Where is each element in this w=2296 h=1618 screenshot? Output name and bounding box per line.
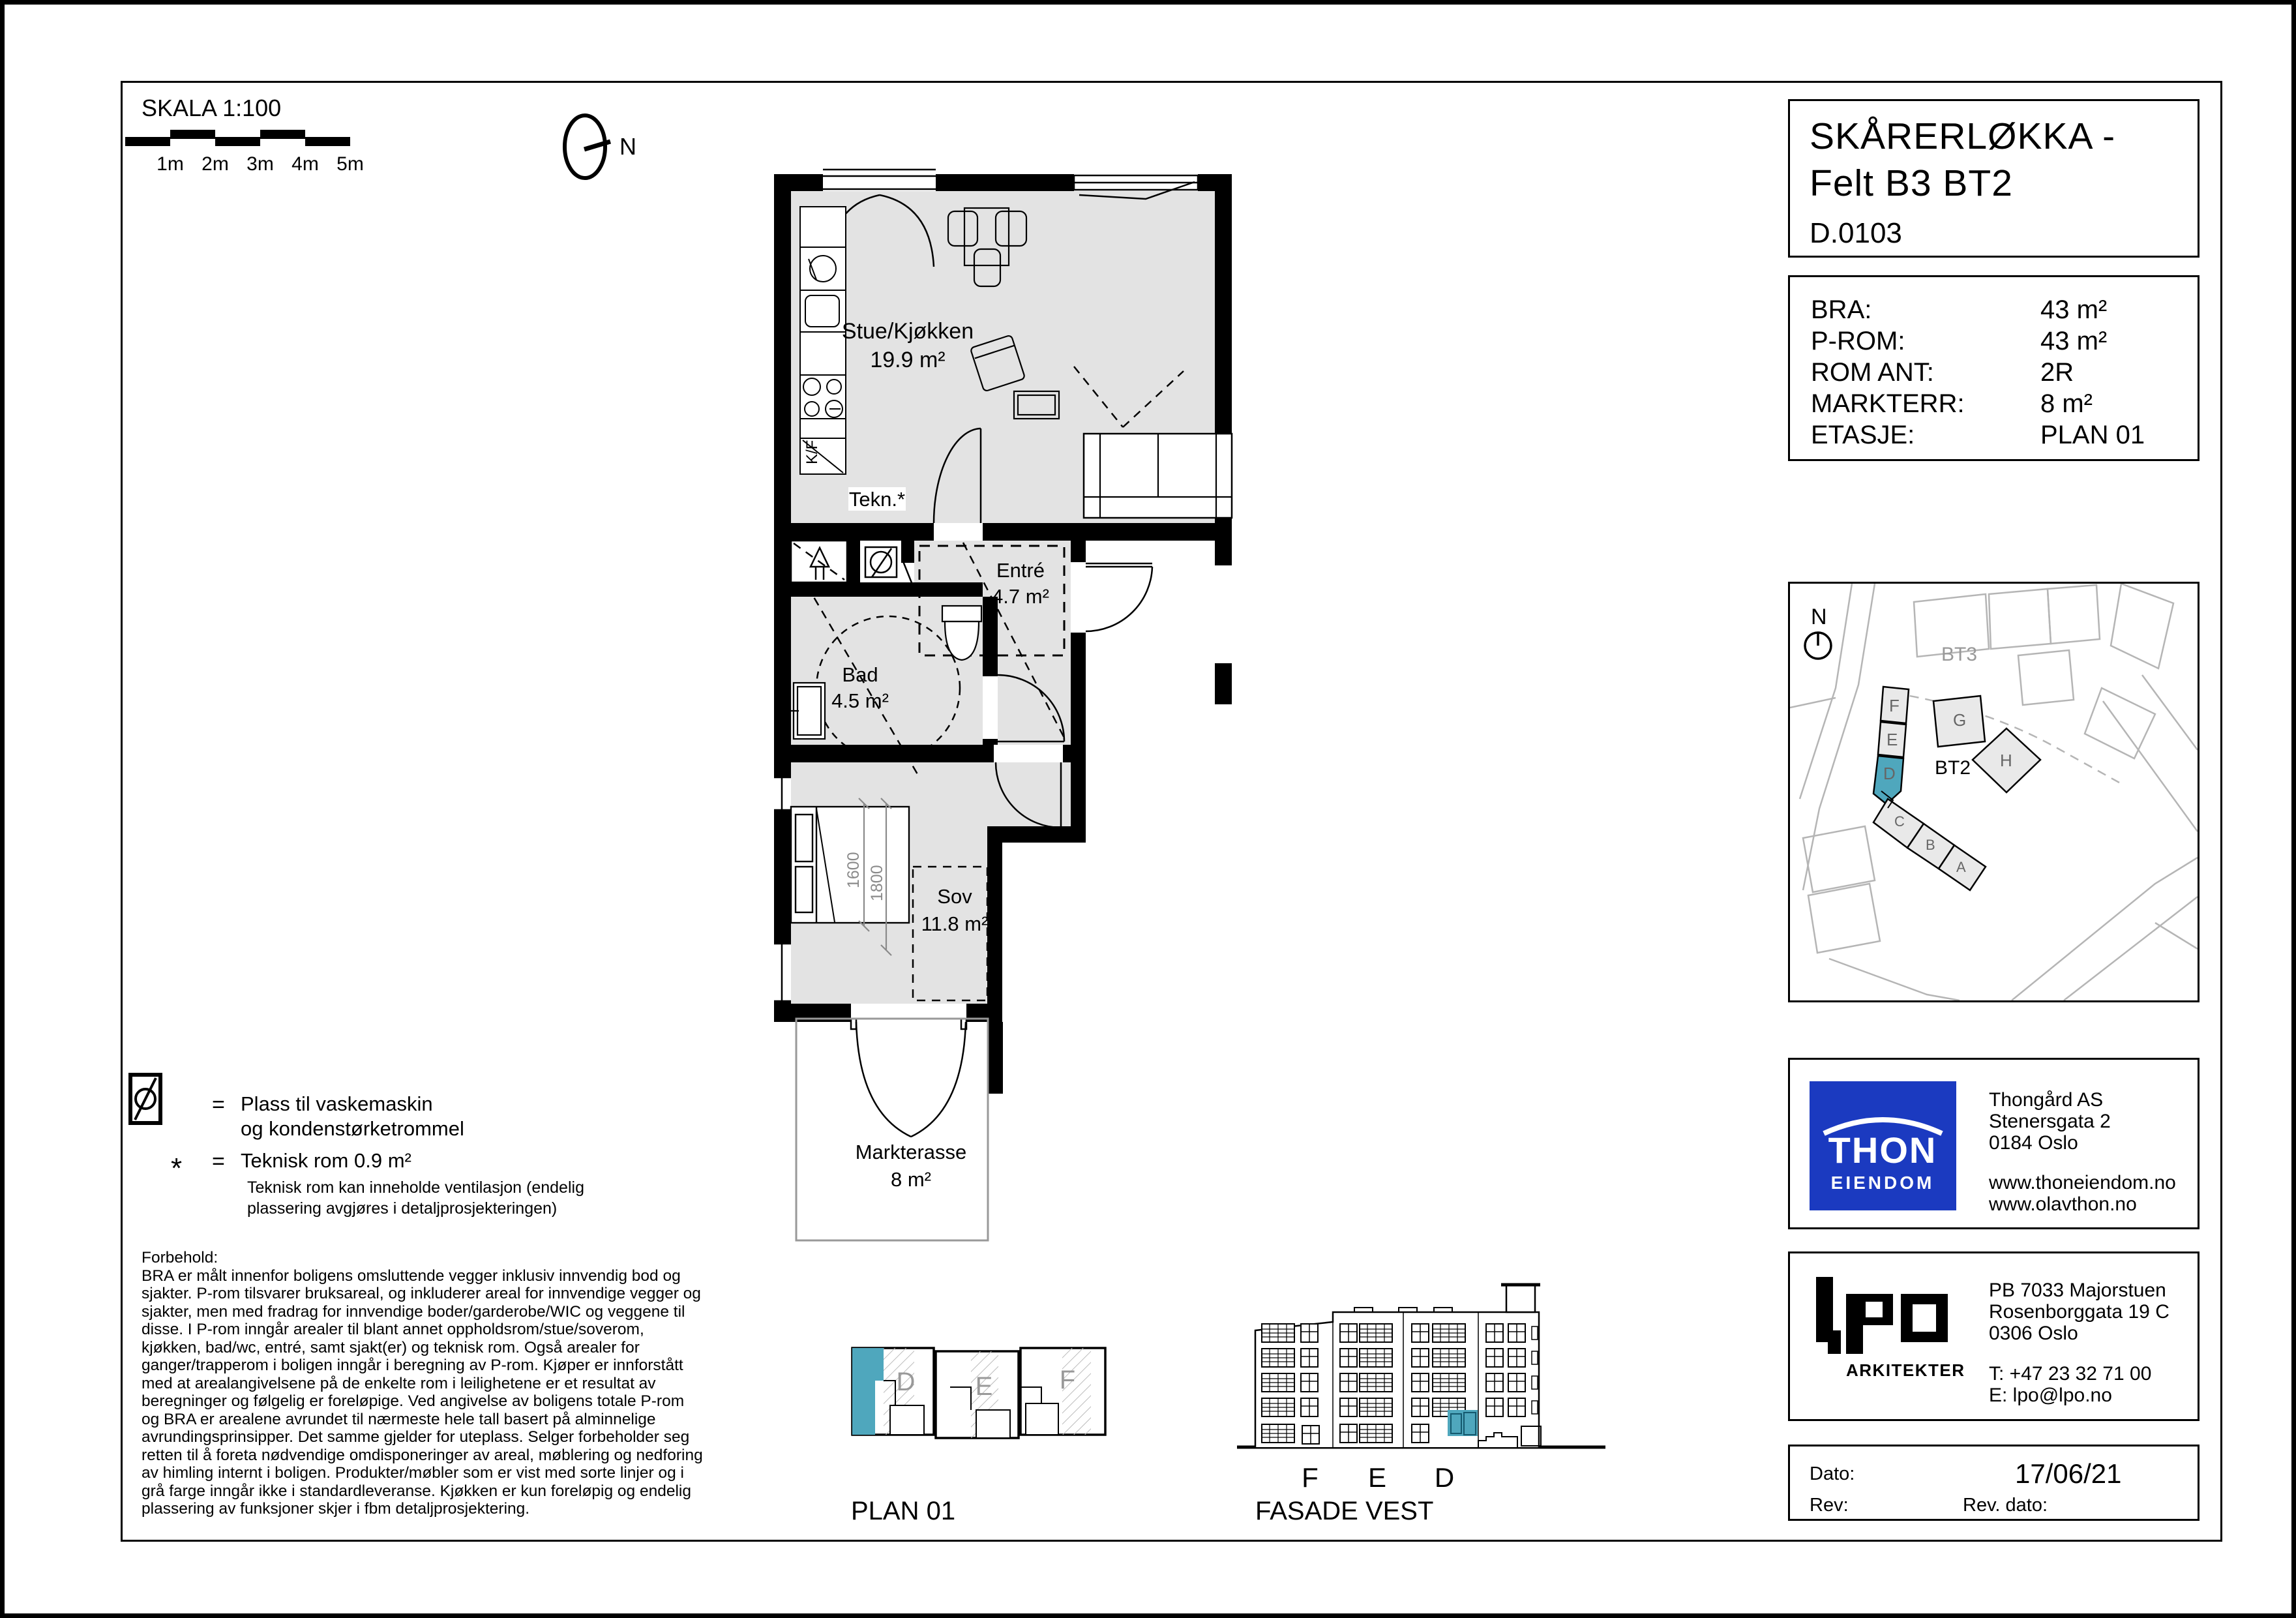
lpo-logo: ARKITEKTER [1810,1272,1966,1389]
legend-wm-line1: Plass til vaskemaskin [241,1092,433,1116]
legend-wm-equals: = [212,1092,225,1118]
architect-phone: T: +47 23 32 71 00 [1989,1363,2151,1385]
rev-dato-label: Rev. dato: [1963,1495,2048,1516]
architect-box: ARKITEKTER PB 7033 Majorstuen Rosenborgg… [1788,1251,2199,1421]
tekn-sjakt [791,541,897,582]
site-north-compass: N [1805,605,1831,659]
room-entre-name: Entré [996,559,1045,582]
sofa-icon [1084,434,1232,518]
thon-logo-subtext: EIENDOM [1831,1173,1935,1193]
architect-addr1: PB 7033 Majorstuen [1989,1280,2169,1301]
north-letter: N [619,133,636,160]
room-stue-area: 19.9 m² [870,348,945,372]
key-plan: D E F [846,1341,1120,1446]
key-plan-unit-f: F [1060,1366,1075,1394]
info-label-bra: BRA: [1811,295,1871,324]
facade-section-f: F [1302,1462,1319,1493]
thon-logo-text: THON [1828,1130,1937,1171]
title-block: SKÅRERLØKKA - Felt B3 BT2 D.0103 [1788,99,2199,258]
info-value-etasje: PLAN 01 [2040,421,2145,450]
site-letter-e: E [1886,730,1898,749]
dato-value: 17/06/21 [2015,1458,2122,1490]
bed-dim-1800: 1800 [868,865,886,901]
key-plan-unit-d: D [897,1368,916,1396]
facade-drawing: F E D [1237,1280,1772,1501]
fridge-label: K/F [803,440,821,464]
site-letter-g: G [1953,710,1966,730]
scale-tick-5m: 5m [327,153,373,175]
room-stue-name: Stue/Kjøkken [842,319,974,344]
room-bad-name: Bad [842,663,878,686]
disclaimer-title: Forbehold: [142,1249,706,1267]
scale-tick-2m: 2m [192,153,238,175]
site-bt3-label: BT3 [1941,644,1977,665]
info-label-romant: ROM ANT: [1811,358,1934,387]
info-value-romant: 2R [2040,358,2074,387]
site-plan: F E D C B A G H BT3 BT2 N [1790,584,2198,1000]
north-compass: N [556,109,647,187]
developer-web2: www.olavthon.no [1989,1193,2176,1215]
thon-logo: THON EIENDOM [1810,1081,1956,1210]
site-letter-f: F [1889,696,1900,715]
site-letter-b: B [1926,837,1935,853]
disclaimer: Forbehold: BRA er målt innenfor boligens… [142,1249,706,1518]
bed-dim-1600: 1600 [844,852,863,888]
developer-city: 0184 Oslo [1989,1132,2111,1154]
revision-box: Dato: 17/06/21 Rev: Rev. dato: [1788,1445,2199,1521]
legend-star-equals: = [212,1149,225,1175]
info-label-markterr: MARKTERR: [1811,389,1965,418]
lpo-logo-subtext: ARKITEKTER [1846,1360,1965,1380]
room-sov-area: 11.8 m² [921,912,989,935]
site-plan-box: F E D C B A G H BT3 BT2 N [1788,582,2199,1002]
scale-tick-1m: 1m [147,153,193,175]
facade-section-letters: F E D [1302,1462,1454,1493]
rev-label: Rev: [1810,1495,1849,1516]
project-title-line1: SKÅRERLØKKA - [1810,113,2115,160]
facade-section-e: E [1368,1462,1386,1493]
facade-section-d: D [1435,1462,1454,1493]
key-plan-unit-e: E [976,1372,993,1401]
kitchen [800,207,846,474]
developer-street: Stenersgata 2 [1989,1111,2111,1132]
site-context [1790,584,2198,1000]
info-label-prom: P-ROM: [1811,327,1905,355]
dato-label: Dato: [1810,1463,1855,1485]
key-plan-caption: PLAN 01 [851,1497,955,1526]
facade-highlight-unit [1448,1410,1478,1436]
architect-addr3: 0306 Oslo [1989,1323,2169,1344]
room-entre-area: 4.7 m² [992,585,1049,608]
scale-tick-4m: 4m [282,153,328,175]
legend-wm-line2: og kondenstørketrommel [241,1117,464,1141]
toilet-icon [942,606,981,622]
facade-caption: FASADE VEST [1255,1497,1433,1526]
info-value-prom: 43 m² [2040,327,2107,356]
legend-star-text: Teknisk rom 0.9 m² [241,1149,411,1173]
architect-email: E: lpo@lpo.no [1989,1385,2151,1406]
project-title-line2: Felt B3 BT2 [1810,160,2115,207]
scale-bar [125,127,399,149]
developer-box: THON EIENDOM Thongård AS Stenersgata 2 0… [1788,1058,2199,1229]
info-label-etasje: ETASJE: [1811,421,1915,449]
info-value-bra: 43 m² [2040,295,2107,325]
site-letter-d: D [1883,764,1896,783]
room-bad-area: 4.5 m² [831,689,889,712]
site-letter-a: A [1956,859,1966,875]
unit-number: D.0103 [1810,217,1902,250]
terrace [796,1019,988,1240]
washing-machine-icon [128,1073,162,1125]
unit-info-box: BRA: 43 m² P-ROM: 43 m² ROM ANT: 2R MARK… [1788,275,2199,461]
room-terrasse-name: Markterasse [856,1141,967,1163]
site-letter-h: H [2000,751,2012,770]
scale-label: SKALA 1:100 [142,95,281,122]
scale-tick-3m: 3m [237,153,283,175]
site-bt2-label: BT2 [1935,757,1971,779]
legend-star-note1: Teknisk rom kan inneholde ventilasjon (e… [247,1178,584,1197]
legend-star: * [171,1152,182,1185]
floor-plan: K/F 1600 1800 [768,168,1263,1250]
drawing-sheet: SKALA 1:100 1m 2m 3m 4m 5m N [0,0,2296,1618]
developer-name: Thongård AS [1989,1089,2111,1111]
site-north-letter: N [1811,605,1827,629]
room-terrasse-area: 8 m² [891,1168,931,1191]
info-value-markterr: 8 m² [2040,389,2093,419]
site-letter-c: C [1894,813,1905,830]
architect-addr2: Rosenborggata 19 C [1989,1301,2169,1323]
room-sov-name: Sov [937,885,972,908]
disclaimer-body: BRA er målt innenfor boligens omsluttend… [142,1267,706,1518]
room-tekn-name: Tekn.* [849,488,905,511]
legend-star-note2: plassering avgjøres i detaljprosjekterin… [247,1199,557,1218]
developer-web1: www.thoneiendom.no [1989,1172,2176,1193]
